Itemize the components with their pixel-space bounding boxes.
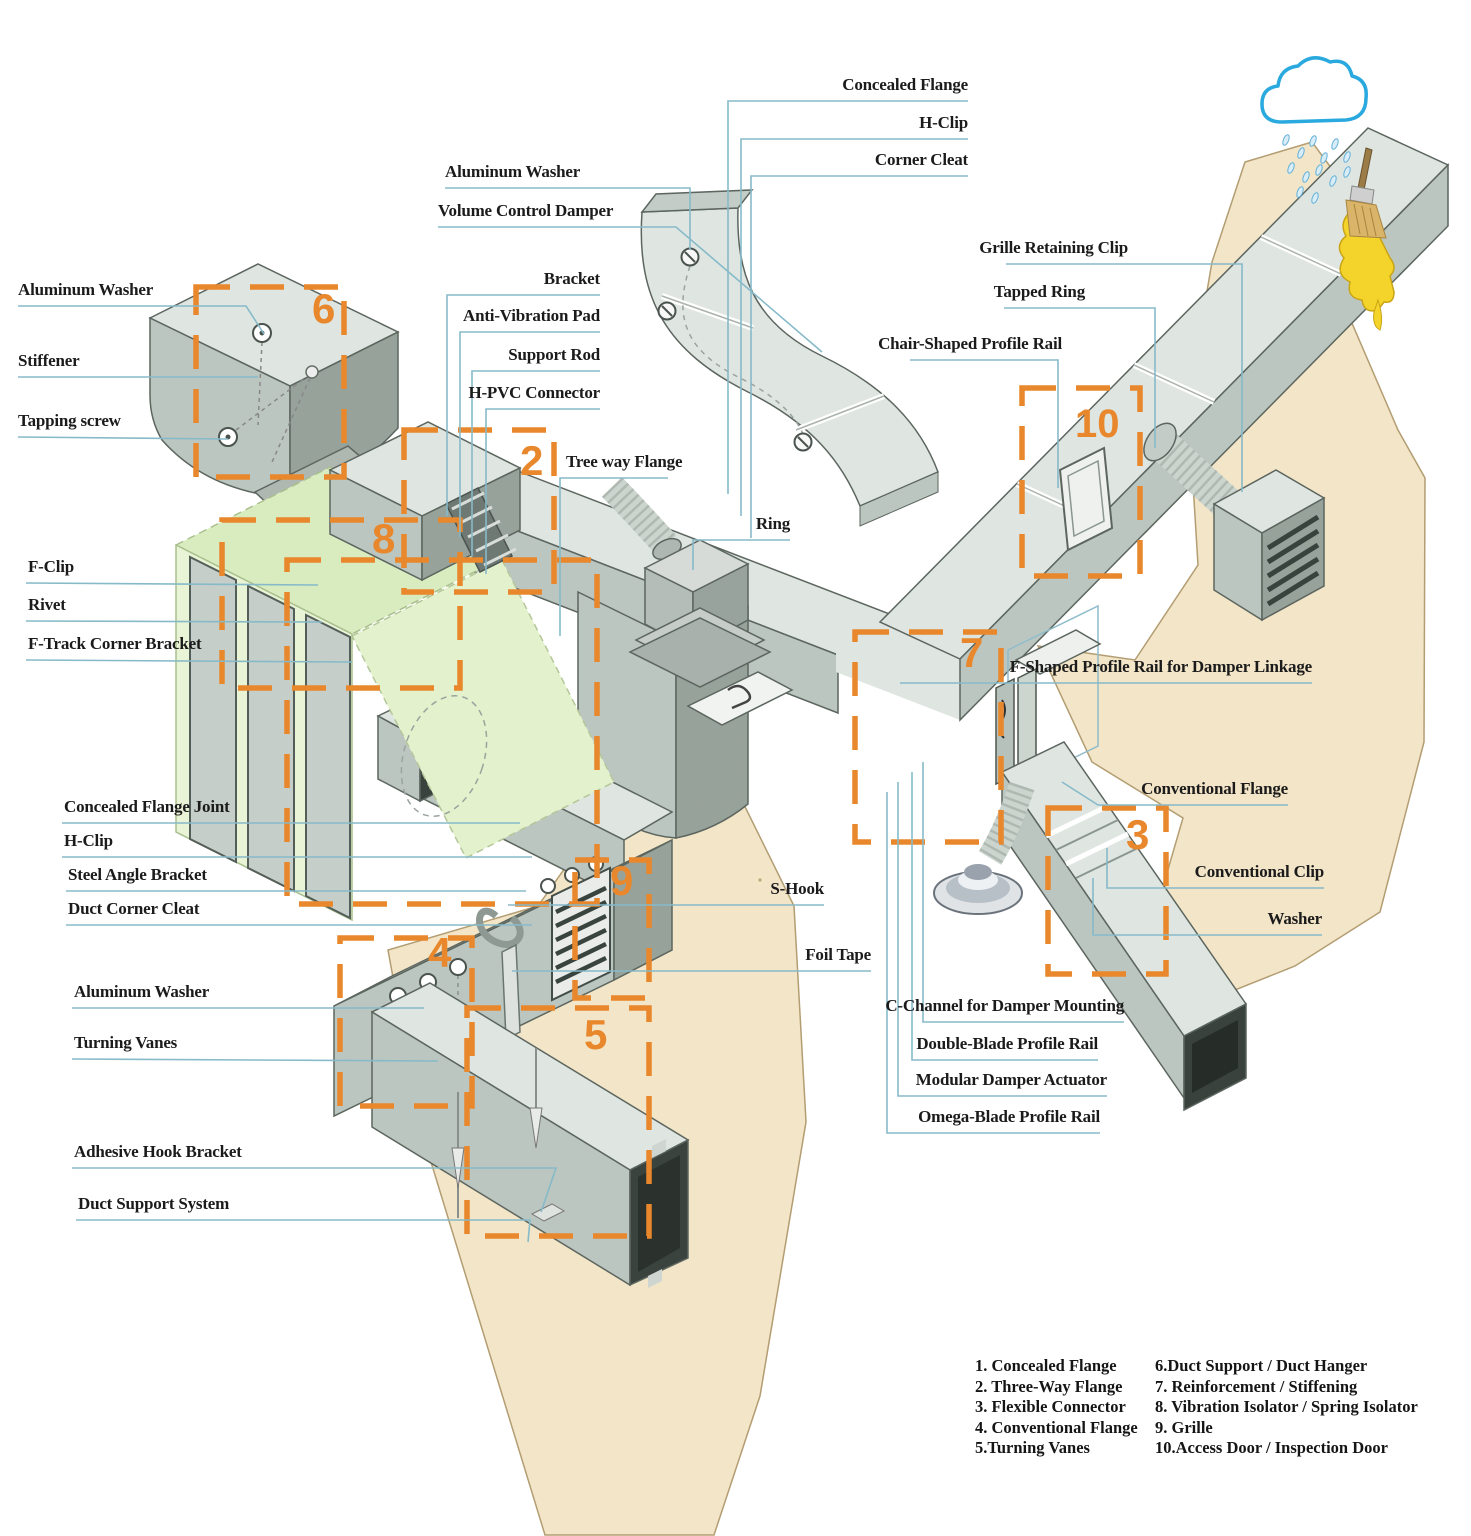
label-adhesive-hook-bracket: Adhesive Hook Bracket bbox=[74, 1142, 242, 1162]
label-c-channel: C-Channel for Damper Mounting bbox=[764, 996, 1124, 1016]
duct-illustration bbox=[0, 0, 1471, 1536]
legend-item-6: 6.Duct Support / Duct Hanger bbox=[1155, 1356, 1418, 1377]
callout-number-8: 8 bbox=[372, 518, 395, 560]
legend-item-1: 1. Concealed Flange bbox=[975, 1356, 1138, 1377]
label-turning-vanes: Turning Vanes bbox=[74, 1033, 177, 1053]
callout-number-9: 9 bbox=[610, 860, 633, 902]
legend-item-4: 4. Conventional Flange bbox=[975, 1418, 1138, 1439]
legend-item-7: 7. Reinforcement / Stiffening bbox=[1155, 1377, 1418, 1398]
label-volume-control-damper: Volume Control Damper bbox=[438, 201, 613, 221]
legend-item-8: 8. Vibration Isolator / Spring Isolator bbox=[1155, 1397, 1418, 1418]
callout-number-3: 3 bbox=[1126, 814, 1149, 856]
label-conventional-flange: Conventional Flange bbox=[928, 779, 1288, 799]
callout-number-6: 6 bbox=[312, 288, 335, 330]
label-omega-blade-profile-rail: Omega-Blade Profile Rail bbox=[740, 1107, 1100, 1127]
label-modular-damper-actuator: Modular Damper Actuator bbox=[747, 1070, 1107, 1090]
label-stiffener: Stiffener bbox=[18, 351, 79, 371]
label-steel-angle-bracket: Steel Angle Bracket bbox=[68, 865, 207, 885]
label-s-hook: S-Hook bbox=[464, 879, 824, 899]
label-bracket: Bracket bbox=[240, 269, 600, 289]
label-conventional-clip: Conventional Clip bbox=[964, 862, 1324, 882]
callout-number-7: 7 bbox=[960, 632, 983, 674]
label-duct-corner-cleat: Duct Corner Cleat bbox=[68, 899, 199, 919]
label-aluminum-washer-top: Aluminum Washer bbox=[445, 162, 580, 182]
label-concealed-flange-joint: Concealed Flange Joint bbox=[64, 797, 230, 817]
label-aluminum-washer-lower-left: Aluminum Washer bbox=[74, 982, 209, 1002]
label-duct-support-system: Duct Support System bbox=[78, 1194, 229, 1214]
label-f-clip: F-Clip bbox=[28, 557, 74, 577]
label-double-blade-profile-rail: Double-Blade Profile Rail bbox=[738, 1034, 1098, 1054]
spring-isolator-foot bbox=[934, 786, 1022, 914]
label-tree-way-flange: Tree way Flange bbox=[566, 452, 682, 472]
legend-right-column: 6.Duct Support / Duct Hanger 7. Reinforc… bbox=[1155, 1356, 1418, 1459]
label-corner-cleat: Corner Cleat bbox=[608, 150, 968, 170]
label-ring: Ring bbox=[430, 514, 790, 534]
diagram-canvas: Aluminum Washer Stiffener Tapping screw … bbox=[0, 0, 1471, 1536]
callout-number-10: 10 bbox=[1075, 404, 1120, 444]
legend-left-column: 1. Concealed Flange 2. Three-Way Flange … bbox=[975, 1356, 1138, 1459]
label-h-pvc-connector: H-PVC Connector bbox=[240, 383, 600, 403]
label-foil-tape: Foil Tape bbox=[511, 945, 871, 965]
callout-number-5: 5 bbox=[584, 1014, 607, 1056]
rain-cloud-icon bbox=[1262, 58, 1366, 122]
legend-item-10: 10.Access Door / Inspection Door bbox=[1155, 1438, 1418, 1459]
legend-item-2: 2. Three-Way Flange bbox=[975, 1377, 1138, 1398]
label-f-track-corner-bracket: F-Track Corner Bracket bbox=[28, 634, 201, 654]
callout-number-4: 4 bbox=[428, 932, 451, 974]
label-chair-shaped-profile-rail: Chair-Shaped Profile Rail bbox=[702, 334, 1062, 354]
legend-item-5: 5.Turning Vanes bbox=[975, 1438, 1138, 1459]
label-h-clip-left: H-Clip bbox=[64, 831, 113, 851]
label-rivet: Rivet bbox=[28, 595, 66, 615]
label-f-shaped-profile-rail: F-Shaped Profile Rail for Damper Linkage bbox=[892, 657, 1312, 677]
label-h-clip-top: H-Clip bbox=[608, 113, 968, 133]
legend-item-9: 9. Grille bbox=[1155, 1418, 1418, 1439]
label-tapping-screw: Tapping screw bbox=[18, 411, 121, 431]
label-washer: Washer bbox=[962, 909, 1322, 929]
label-anti-vibration-pad: Anti-Vibration Pad bbox=[240, 306, 600, 326]
label-aluminum-washer-upper-left: Aluminum Washer bbox=[18, 280, 153, 300]
label-tapped-ring: Tapped Ring bbox=[725, 282, 1085, 302]
label-grille-retaining-clip: Grille Retaining Clip bbox=[768, 238, 1128, 258]
label-concealed-flange: Concealed Flange bbox=[608, 75, 968, 95]
callout-number-2: 2 bbox=[520, 440, 543, 482]
label-support-rod: Support Rod bbox=[240, 345, 600, 365]
legend-item-3: 3. Flexible Connector bbox=[975, 1397, 1138, 1418]
